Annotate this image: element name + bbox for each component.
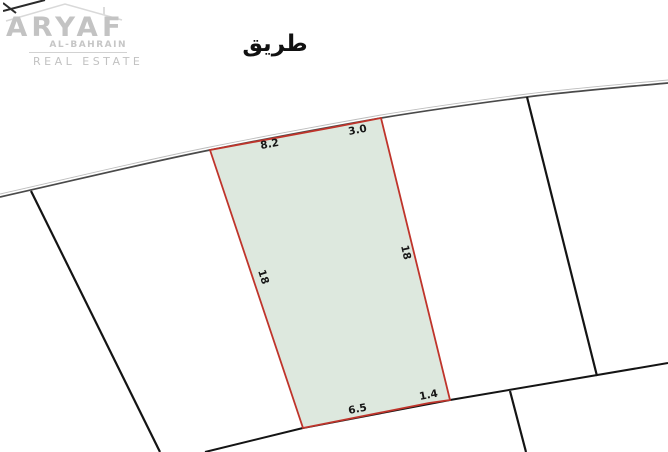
highlighted-plot [210, 118, 450, 428]
logo-divider [29, 52, 127, 53]
right-parcel-divider-line [527, 97, 597, 376]
agency-logo: ARYAF AL-BAHRAIN REAL ESTATE [3, 0, 133, 70]
brand-name: ARYAF [6, 12, 125, 43]
brand-region: AL-BAHRAIN [49, 40, 127, 50]
plot-map: طريق 8.2 3.0 18 18 6.5 1.4 ARYAF AL-BAHR… [0, 0, 668, 452]
brand-tagline: REAL ESTATE [33, 55, 143, 68]
lower-row-divider-line [510, 391, 526, 452]
road-label: طريق [242, 31, 307, 57]
left-parcel-divider-line [31, 191, 160, 452]
